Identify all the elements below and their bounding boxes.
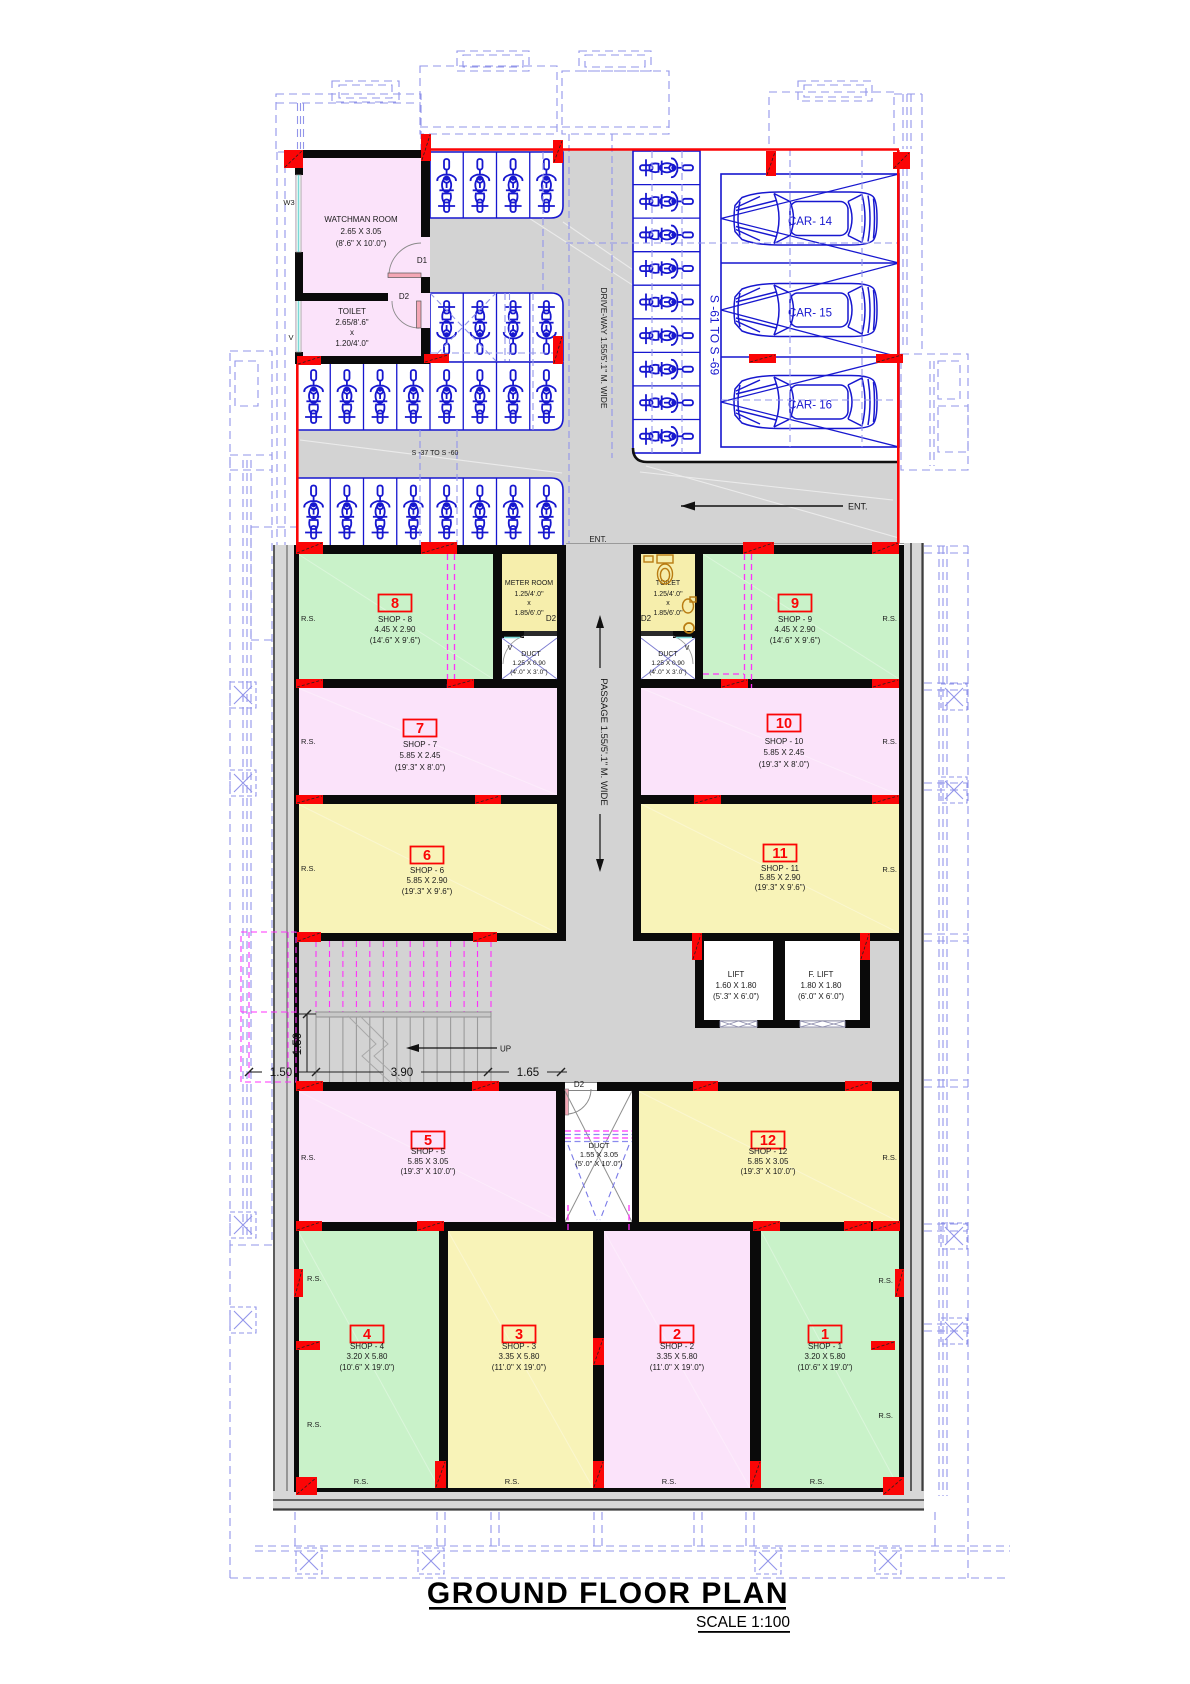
svg-text:(14'.6" X 9'.6"): (14'.6" X 9'.6"): [370, 636, 421, 645]
svg-text:(19'.3" X 8'.0"): (19'.3" X 8'.0"): [759, 760, 810, 769]
svg-text:TOILET: TOILET: [338, 307, 366, 316]
svg-text:(19'.3" X 9'.6"): (19'.3" X 9'.6"): [755, 883, 806, 892]
svg-text:(4'.0" X 3'.0"): (4'.0" X 3'.0"): [510, 669, 547, 676]
svg-text:(19'.3" X 8'.0"): (19'.3" X 8'.0"): [395, 763, 446, 772]
svg-text:6: 6: [423, 848, 431, 864]
svg-text:3: 3: [515, 1327, 523, 1343]
svg-text:R.S.: R.S.: [307, 1420, 322, 1429]
svg-text:SHOP - 4: SHOP - 4: [350, 1342, 385, 1351]
svg-text:R.S.: R.S.: [878, 1276, 893, 1285]
svg-text:8: 8: [391, 596, 399, 612]
svg-text:DRIVE-WAY 1.55/5'.1" M. WIDE: DRIVE-WAY 1.55/5'.1" M. WIDE: [599, 287, 609, 408]
svg-text:1.25/4'.0": 1.25/4'.0": [514, 591, 544, 598]
svg-text:R.S.: R.S.: [307, 1274, 322, 1283]
svg-text:(10'.6" X 19'.0"): (10'.6" X 19'.0"): [798, 1363, 853, 1372]
svg-text:1.50: 1.50: [270, 1067, 292, 1079]
svg-text:D1: D1: [417, 256, 428, 265]
svg-text:1.55 X 3.05: 1.55 X 3.05: [580, 1150, 618, 1159]
svg-text:3.90: 3.90: [391, 1067, 413, 1079]
svg-text:2.65 X 3.05: 2.65 X 3.05: [341, 227, 382, 236]
svg-text:1.25 X 0.90: 1.25 X 0.90: [651, 660, 685, 667]
svg-text:SHOP - 6: SHOP - 6: [410, 866, 445, 875]
svg-text:S -37 TO S -60: S -37 TO S -60: [412, 450, 459, 457]
svg-text:SHOP - 10: SHOP - 10: [765, 737, 804, 746]
svg-text:R.S.: R.S.: [301, 1153, 316, 1162]
svg-text:(10'.6" X 19'.0"): (10'.6" X 19'.0"): [340, 1363, 395, 1372]
svg-text:1.25/4'.0": 1.25/4'.0": [653, 591, 683, 598]
svg-text:1.85/6'.0": 1.85/6'.0": [653, 610, 683, 617]
svg-text:DUCT: DUCT: [658, 651, 678, 658]
svg-text:1: 1: [821, 1327, 829, 1343]
svg-text:SHOP - 2: SHOP - 2: [660, 1342, 695, 1351]
svg-text:(19'.3" X 10'.0"): (19'.3" X 10'.0"): [741, 1167, 796, 1176]
svg-text:5.85 X 2.90: 5.85 X 2.90: [407, 876, 448, 885]
svg-text:(6'.0" X 6'.0"): (6'.0" X 6'.0"): [798, 992, 844, 1001]
svg-text:SHOP - 8: SHOP - 8: [378, 615, 413, 624]
svg-text:SCALE 1:100: SCALE 1:100: [696, 1614, 790, 1631]
svg-text:CAR- 15: CAR- 15: [788, 308, 832, 320]
svg-text:SHOP - 11: SHOP - 11: [761, 864, 799, 873]
svg-text:4: 4: [363, 1327, 371, 1343]
svg-text:3.35 X 5.80: 3.35 X 5.80: [499, 1352, 540, 1361]
svg-text:R.S.: R.S.: [662, 1477, 677, 1486]
svg-text:D2: D2: [574, 1080, 585, 1089]
svg-text:(11'.0" X 19'.0"): (11'.0" X 19'.0"): [650, 1363, 705, 1372]
svg-text:D2: D2: [546, 614, 557, 623]
svg-text:R.S.: R.S.: [301, 864, 316, 873]
svg-text:5.85 X 2.45: 5.85 X 2.45: [400, 751, 441, 760]
svg-text:ENT.: ENT.: [848, 502, 868, 512]
svg-text:LIFT: LIFT: [728, 970, 745, 979]
svg-text:D2: D2: [641, 614, 652, 623]
svg-text:11: 11: [772, 846, 787, 862]
svg-text:3.20 X 5.80: 3.20 X 5.80: [347, 1352, 388, 1361]
svg-text:R.S.: R.S.: [301, 737, 316, 746]
svg-text:D2: D2: [399, 292, 410, 301]
svg-text:W3: W3: [283, 198, 294, 207]
svg-text:F. LIFT: F. LIFT: [809, 970, 834, 979]
svg-text:x: x: [666, 600, 670, 607]
svg-text:3.20 X 5.80: 3.20 X 5.80: [805, 1352, 846, 1361]
svg-text:1.20/4'.0": 1.20/4'.0": [335, 339, 368, 348]
svg-text:(5'.3" X 6'.0"): (5'.3" X 6'.0"): [713, 992, 759, 1001]
svg-text:10: 10: [776, 716, 792, 732]
svg-text:V: V: [288, 333, 293, 342]
svg-text:SHOP - 1: SHOP - 1: [808, 1342, 843, 1351]
svg-text:1.85/6'.0": 1.85/6'.0": [514, 610, 544, 617]
svg-text:5.85 X 3.05: 5.85 X 3.05: [748, 1157, 789, 1166]
svg-text:SHOP - 7: SHOP - 7: [403, 740, 438, 749]
svg-text:3.35 X 5.80: 3.35 X 5.80: [657, 1352, 698, 1361]
svg-text:(19'.3" X 9'.6"): (19'.3" X 9'.6"): [402, 887, 453, 896]
svg-text:7: 7: [416, 721, 424, 737]
svg-text:1.50: 1.50: [292, 1033, 304, 1055]
svg-text:4.45 X 2.90: 4.45 X 2.90: [775, 625, 816, 634]
svg-text:2: 2: [673, 1327, 681, 1343]
svg-text:R.S.: R.S.: [301, 614, 316, 623]
svg-text:x: x: [350, 328, 354, 337]
svg-text:R.S.: R.S.: [810, 1477, 825, 1486]
svg-text:SHOP - 9: SHOP - 9: [778, 615, 813, 624]
svg-text:GROUND FLOOR PLAN: GROUND FLOOR PLAN: [427, 1577, 789, 1610]
svg-text:1.25 X 0.90: 1.25 X 0.90: [512, 660, 546, 667]
svg-text:UP: UP: [500, 1045, 511, 1054]
svg-text:CAR- 14: CAR- 14: [788, 216, 833, 228]
svg-text:9: 9: [791, 596, 799, 612]
svg-text:R.S.: R.S.: [882, 614, 897, 623]
svg-text:S -61 TO S -69: S -61 TO S -69: [708, 295, 722, 376]
svg-text:CAR- 16: CAR- 16: [788, 400, 832, 412]
svg-text:R.S.: R.S.: [505, 1477, 520, 1486]
svg-text:x: x: [527, 600, 531, 607]
svg-text:5.85 X 3.05: 5.85 X 3.05: [408, 1157, 449, 1166]
svg-text:5.85 X 2.45: 5.85 X 2.45: [764, 748, 805, 757]
svg-text:R.S.: R.S.: [878, 1411, 893, 1420]
svg-text:WATCHMAN ROOM: WATCHMAN ROOM: [324, 215, 398, 224]
svg-text:1.60 X 1.80: 1.60 X 1.80: [716, 981, 757, 990]
svg-text:R.S.: R.S.: [882, 737, 897, 746]
svg-text:V: V: [508, 645, 513, 652]
svg-text:1.80 X 1.80: 1.80 X 1.80: [801, 981, 842, 990]
svg-text:(19'.3" X 10'.0"): (19'.3" X 10'.0"): [401, 1167, 456, 1176]
svg-text:PASSAGE 1.55/5'.1" M. WIDE: PASSAGE 1.55/5'.1" M. WIDE: [598, 678, 609, 806]
svg-text:R.S.: R.S.: [354, 1477, 369, 1486]
svg-text:5.85 X 2.90: 5.85 X 2.90: [760, 873, 801, 882]
svg-text:4.45 X 2.90: 4.45 X 2.90: [375, 625, 416, 634]
svg-text:R.S.: R.S.: [882, 865, 897, 874]
svg-text:SHOP - 12: SHOP - 12: [749, 1147, 788, 1156]
svg-text:SHOP - 5: SHOP - 5: [411, 1147, 446, 1156]
svg-text:METER ROOM: METER ROOM: [505, 580, 553, 587]
svg-text:(8'.6" X 10'.0"): (8'.6" X 10'.0"): [336, 239, 387, 248]
svg-text:SHOP - 3: SHOP - 3: [502, 1342, 537, 1351]
svg-text:(5'.0" X 10'.0"): (5'.0" X 10'.0"): [575, 1159, 623, 1168]
svg-text:(14'.6" X 9'.6"): (14'.6" X 9'.6"): [770, 636, 821, 645]
svg-text:(11'.0" X 19'.0"): (11'.0" X 19'.0"): [492, 1363, 547, 1372]
svg-text:DUCT: DUCT: [589, 1141, 610, 1150]
svg-text:V: V: [685, 645, 690, 652]
svg-text:2.65/8'.6": 2.65/8'.6": [335, 318, 368, 327]
svg-text:1.65: 1.65: [517, 1067, 539, 1079]
svg-text:(4'.0" X 3'.0"): (4'.0" X 3'.0"): [649, 669, 686, 676]
svg-text:R.S.: R.S.: [882, 1153, 897, 1162]
svg-text:DUCT: DUCT: [521, 651, 541, 658]
svg-text:ENT.: ENT.: [589, 535, 606, 544]
